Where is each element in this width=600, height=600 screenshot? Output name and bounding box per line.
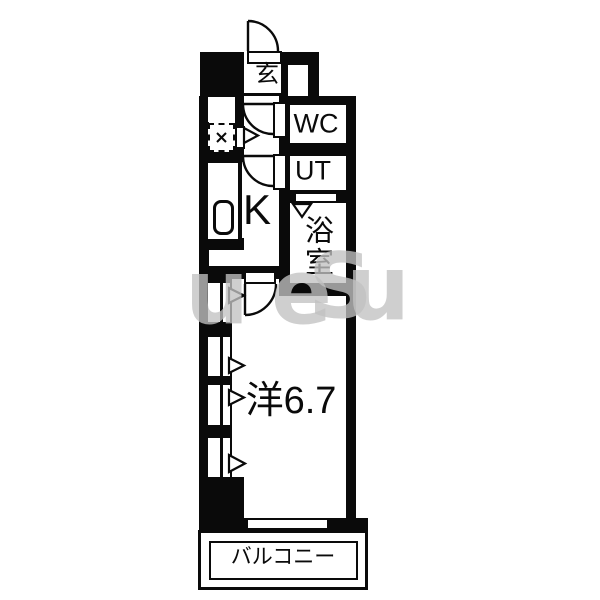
kitchen-label: K: [243, 189, 271, 231]
direction-arrow-icon: [229, 455, 245, 472]
bath-label: 浴室: [302, 215, 331, 279]
entrance-door-arc-icon: [248, 21, 278, 51]
western-room-label: 洋6.7: [246, 382, 337, 420]
direction-arrow-icon: [229, 390, 244, 405]
door-swing-layer: [0, 0, 600, 600]
ut-door-arc-icon: [243, 156, 273, 186]
floor-plan: 玄 WC UT 浴室 K 洋6.7 バルコニー u e S u: [0, 0, 600, 600]
balcony-label: バルコニー: [231, 547, 336, 568]
direction-arrow-icon: [244, 128, 258, 143]
direction-arrow-icon: [229, 358, 244, 373]
ut-label: UT: [295, 158, 331, 185]
genkan-label: 玄: [255, 63, 279, 87]
pipe-space-x-icon: [217, 133, 226, 142]
wc-label: WC: [294, 111, 339, 138]
room-door-arc-icon: [245, 284, 276, 315]
direction-arrow-icon: [229, 288, 244, 303]
